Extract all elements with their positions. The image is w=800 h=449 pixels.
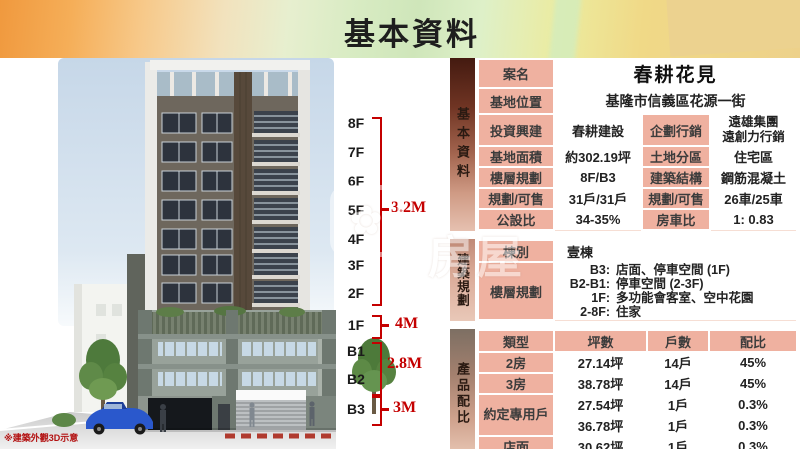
info-panel: 基本資料 案名 春耕花見 基地位置 基隆市信義區花源一街 投資興建 春耕建設 企… [450,58,798,449]
dash [382,408,389,411]
table-row: 基地面積 約302.19坪 土地分區 住宅區 [478,146,797,167]
section-basic-title: 基本資料 [453,107,472,183]
table-row: 案名 春耕花見 [478,59,797,88]
dim-floor-height: 3.2M [391,199,426,217]
unit-count: 1戶 [647,394,709,415]
unit-ratio: 0.3% [709,415,797,436]
field-value: 31戶/31戶 [554,188,642,209]
floor-label: B2 [340,371,372,387]
floor-key: 2-8F: [558,305,616,319]
table-row: 約定專用戶 27.54坪 1戶 0.3% [478,394,797,415]
slide: 基本資料 [0,0,800,449]
column-header: 類型 [478,330,554,352]
table-row: 3房 38.78坪 14戶 45% [478,373,797,394]
floor-key: B2-B1: [558,277,616,291]
field-label: 土地分區 [642,146,710,167]
table-row: 基地位置 基隆市信義區花源一街 [478,88,797,114]
section-building-plan: 建築規劃 棟別 壹棟 樓層規劃 B3: 店面、停車空間 (1F) [450,239,798,321]
field-value: 1: 0.83 [710,209,797,230]
field-label: 投資興建 [478,114,554,146]
floor-usage-line: 1F: 多功能會客室、空中花園 [558,291,793,305]
floor-use: 店面、停車空間 (1F) [616,263,730,277]
section-product-mix: 產品配比 類型 坪數 戶數 配比 2房 27.14坪 14戶 45% 3房 [450,329,798,449]
field-label: 基地位置 [478,88,554,114]
field-label: 樓層規劃 [478,262,554,320]
unit-ratio: 0.3% [709,394,797,415]
bracket-b1-b2 [372,342,382,396]
floor-usage-line: B3: 店面、停車空間 (1F) [558,263,793,277]
banner-decoration [548,0,581,58]
column-header: 坪數 [554,330,647,352]
unit-count: 14戶 [647,373,709,394]
product-mix-table: 類型 坪數 戶數 配比 2房 27.14坪 14戶 45% 3房 38.78坪 … [477,329,798,449]
section-product-sidebar: 產品配比 [450,329,475,449]
floor-label: B1 [340,343,372,359]
floor-label: 1F [340,317,372,333]
section-basic-info: 基本資料 案名 春耕花見 基地位置 基隆市信義區花源一街 投資興建 春耕建設 企… [450,58,798,231]
building-count: 壹棟 [554,240,797,262]
floor-use: 多功能會客室、空中花園 [616,291,754,305]
table-row: 棟別 壹棟 [478,240,797,262]
floor-label: B3 [340,401,372,417]
table-row: 投資興建 春耕建設 企劃行銷 遠雄集團 遠創力行銷 [478,114,797,146]
marketing-line1: 遠雄集團 [714,115,793,130]
bracket-1f [372,315,382,339]
table-header-row: 類型 坪數 戶數 配比 [478,330,797,352]
field-value: 約302.19坪 [554,146,642,167]
field-label: 規劃/可售 [478,188,554,209]
building-plan-table: 棟別 壹棟 樓層規劃 B3: 店面、停車空間 (1F) B2-B1: 停車空間 … [477,239,798,321]
unit-area: 30.62坪 [554,436,647,449]
field-label: 棟別 [478,240,554,262]
field-value: 8F/B3 [554,167,642,188]
dim-basement-height: 2.8M [387,355,422,373]
floor-label: 5F [340,202,372,218]
unit-count: 1戶 [647,436,709,449]
unit-type: 2房 [478,352,554,373]
dim-b3-height: 3M [393,399,416,417]
bracket-2f-8f [372,117,382,306]
table-row: 樓層規劃 8F/B3 建築結構 鋼筋混凝土 [478,167,797,188]
field-label: 公設比 [478,209,554,230]
field-label: 房車比 [642,209,710,230]
floor-key: B3: [558,263,616,277]
floor-use: 停車空間 (2-3F) [616,277,704,291]
column-header: 配比 [709,330,797,352]
banner-note-decoration [666,0,800,57]
building-3d-rendering [0,58,336,449]
floor-use: 住家 [616,305,641,319]
floor-label: 8F [340,115,372,131]
table-row: 樓層規劃 B3: 店面、停車空間 (1F) B2-B1: 停車空間 (2-3F)… [478,262,797,320]
unit-ratio: 0.3% [709,436,797,449]
section-plan-sidebar: 建築規劃 [450,239,475,321]
dash [382,324,389,327]
dim-1f-height: 4M [395,315,418,333]
floor-label: 4F [340,231,372,247]
floor-label: 2F [340,285,372,301]
table-row: 2房 27.14坪 14戶 45% [478,352,797,373]
field-value: 26車/25車 [710,188,797,209]
dash [382,208,389,211]
floor-usage-line: B2-B1: 停車空間 (2-3F) [558,277,793,291]
project-name: 春耕花見 [554,59,797,88]
floor-label: 3F [340,257,372,273]
field-label: 基地面積 [478,146,554,167]
field-label: 規劃/可售 [642,188,710,209]
field-value: 鋼筋混凝土 [710,167,797,188]
section-plan-title: 建築規劃 [453,253,472,307]
bracket-b3 [372,396,382,426]
field-label: 企劃行銷 [642,114,710,146]
unit-area: 38.78坪 [554,373,647,394]
unit-ratio: 45% [709,373,797,394]
unit-count: 14戶 [647,352,709,373]
table-row: 公設比 34-35% 房車比 1: 0.83 [478,209,797,230]
floor-usage-line: 2-8F: 住家 [558,305,793,319]
field-label: 案名 [478,59,554,88]
floor-label: 7F [340,144,372,160]
basic-info-table: 案名 春耕花見 基地位置 基隆市信義區花源一街 投資興建 春耕建設 企劃行銷 遠… [477,58,798,231]
marketing-line2: 遠創力行銷 [714,130,793,145]
unit-type: 店面 [478,436,554,449]
floor-key: 1F: [558,291,616,305]
page-title: 基本資料 [344,9,480,54]
section-product-title: 產品配比 [453,362,472,426]
unit-area: 27.54坪 [554,394,647,415]
field-value: 34-35% [554,209,642,230]
photo-disclaimer: ※建築外觀3D示意 [4,431,78,444]
field-value: 住宅區 [710,146,797,167]
table-row: 店面 30.62坪 1戶 0.3% [478,436,797,449]
unit-type: 3房 [478,373,554,394]
column-header: 戶數 [647,330,709,352]
section-basic-sidebar: 基本資料 [450,58,475,231]
unit-area: 36.78坪 [554,415,647,436]
field-value: 春耕建設 [554,114,642,146]
field-value: 遠雄集團 遠創力行銷 [710,114,797,146]
table-row: 規劃/可售 31戶/31戶 規劃/可售 26車/25車 [478,188,797,209]
floor-usage-list: B3: 店面、停車空間 (1F) B2-B1: 停車空間 (2-3F) 1F: … [554,262,797,320]
building-photo-area: ※建築外觀3D示意 [0,58,336,449]
unit-area: 27.14坪 [554,352,647,373]
floor-label: 6F [340,173,372,189]
unit-type: 約定專用戶 [478,394,554,436]
field-label: 樓層規劃 [478,167,554,188]
site-location: 基隆市信義區花源一街 [554,88,797,114]
field-label: 建築結構 [642,167,710,188]
unit-ratio: 45% [709,352,797,373]
floor-scale: 8F 7F 6F 5F 4F 3F 2F 1F B1 B2 B3 3.2M 4M… [336,58,450,449]
unit-count: 1戶 [647,415,709,436]
